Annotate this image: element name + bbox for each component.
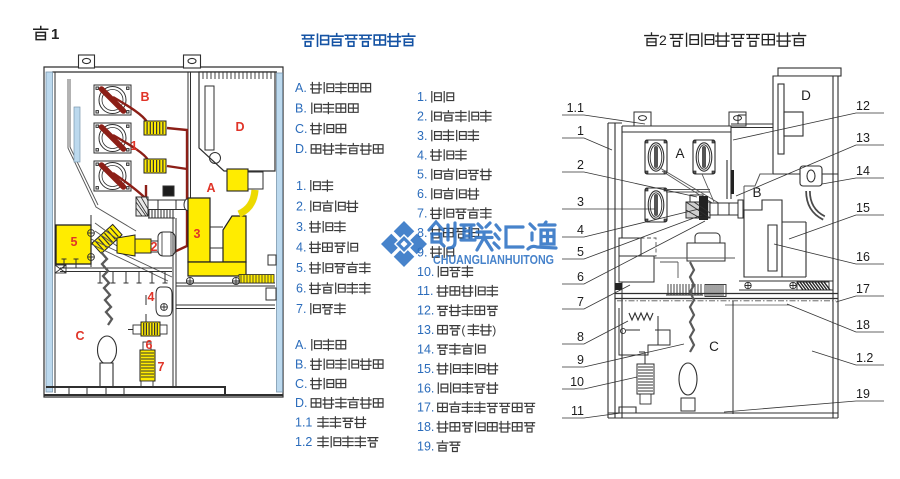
svg-text:11.: 11.: [417, 284, 433, 298]
svg-text:17.: 17.: [417, 401, 434, 415]
svg-text:1.: 1.: [296, 179, 306, 193]
svg-text:B: B: [140, 90, 149, 104]
svg-text:B.: B.: [295, 101, 307, 115]
svg-text:4: 4: [577, 223, 584, 237]
svg-text:13.: 13.: [417, 323, 434, 337]
svg-text:19: 19: [856, 387, 870, 401]
svg-text:1.1: 1.1: [567, 101, 584, 115]
svg-text:16.: 16.: [417, 381, 434, 395]
svg-text:17: 17: [856, 282, 870, 296]
svg-text:A: A: [675, 146, 684, 161]
svg-text:D.: D.: [295, 142, 308, 156]
svg-text:2: 2: [151, 240, 158, 254]
svg-text:15: 15: [856, 201, 870, 215]
svg-text:18: 18: [856, 318, 870, 332]
svg-text:A: A: [206, 181, 215, 195]
svg-text:3: 3: [194, 227, 201, 241]
svg-text:3.: 3.: [417, 129, 427, 143]
svg-text:A.: A.: [295, 81, 307, 95]
svg-text:19.: 19.: [417, 440, 434, 454]
svg-text:13: 13: [856, 131, 870, 145]
svg-text:5.: 5.: [296, 261, 306, 275]
svg-text:8: 8: [577, 330, 584, 344]
svg-text:1.2: 1.2: [856, 351, 873, 365]
svg-text:): ): [492, 323, 496, 337]
svg-text:7.: 7.: [296, 302, 306, 316]
svg-text:12.: 12.: [417, 304, 434, 318]
svg-text:7: 7: [577, 295, 584, 309]
svg-text:C: C: [709, 339, 719, 354]
svg-text:6: 6: [146, 338, 153, 352]
svg-text:A.: A.: [295, 338, 307, 352]
svg-text:3: 3: [577, 195, 584, 209]
svg-text:2.: 2.: [296, 200, 306, 214]
svg-text:5: 5: [577, 245, 584, 259]
svg-text:4.: 4.: [417, 148, 427, 162]
svg-text:14.: 14.: [417, 342, 434, 356]
svg-text:CHUANGLIANHUITONG: CHUANGLIANHUITONG: [433, 253, 554, 267]
svg-text:C.: C.: [295, 377, 308, 391]
svg-text:2.: 2.: [417, 109, 427, 123]
svg-text:D: D: [235, 120, 244, 134]
svg-text:6.: 6.: [417, 187, 427, 201]
svg-text:6: 6: [577, 270, 584, 284]
svg-text:B.: B.: [295, 357, 307, 371]
svg-text:1.1: 1.1: [295, 416, 312, 430]
svg-text:1.: 1.: [417, 90, 427, 104]
svg-text:2: 2: [577, 158, 584, 172]
svg-text:5.: 5.: [417, 168, 427, 182]
svg-text:6.: 6.: [296, 282, 306, 296]
svg-text:18.: 18.: [417, 420, 434, 434]
svg-text:(: (: [461, 323, 465, 337]
svg-text:C.: C.: [295, 122, 308, 136]
svg-text:10.: 10.: [417, 265, 434, 279]
svg-text:3.: 3.: [296, 220, 306, 234]
svg-text:15.: 15.: [417, 362, 434, 376]
svg-text:1: 1: [131, 139, 138, 153]
svg-text:D.: D.: [295, 396, 308, 410]
svg-text:16: 16: [856, 250, 870, 264]
svg-text:9: 9: [577, 353, 584, 367]
svg-text:1: 1: [577, 124, 584, 138]
svg-text:10: 10: [570, 375, 584, 389]
svg-text:C: C: [75, 329, 84, 343]
svg-text:4: 4: [148, 290, 155, 304]
svg-text:7: 7: [158, 360, 165, 374]
svg-text:4.: 4.: [296, 241, 306, 255]
svg-text:11: 11: [571, 404, 584, 418]
svg-text:14: 14: [856, 164, 870, 178]
svg-text:2: 2: [659, 32, 667, 48]
svg-text:7.: 7.: [417, 207, 427, 221]
svg-text:1.2: 1.2: [295, 435, 312, 449]
svg-text:5: 5: [71, 235, 78, 249]
svg-text:12: 12: [856, 99, 870, 113]
svg-text:1: 1: [51, 26, 59, 43]
svg-text:D: D: [801, 88, 811, 103]
